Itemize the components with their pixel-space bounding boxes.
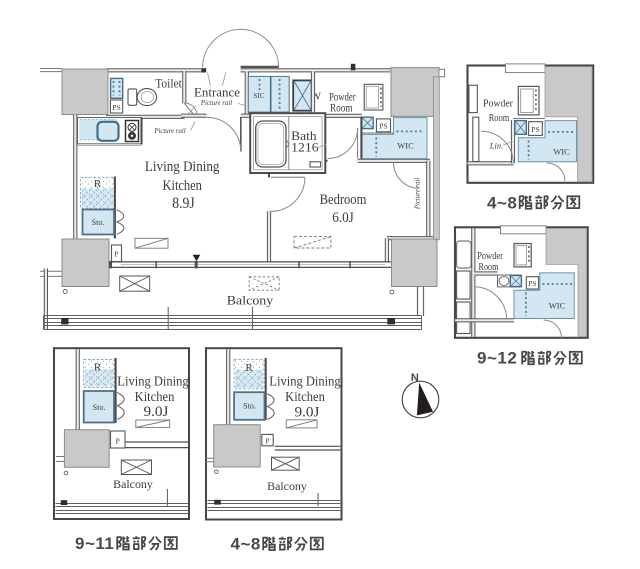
svg-text:9.0J: 9.0J	[144, 404, 169, 420]
svg-text:9~12: 9~12	[477, 349, 517, 368]
svg-text:Sto.: Sto.	[243, 401, 256, 410]
svg-text:Living Dining: Living Dining	[117, 375, 188, 390]
svg-text:PS: PS	[528, 279, 536, 288]
svg-text:Balcony: Balcony	[267, 479, 307, 493]
svg-text:4~8: 4~8	[487, 193, 517, 212]
svg-text:Room: Room	[489, 112, 510, 124]
svg-text:9~11: 9~11	[75, 534, 114, 553]
svg-text:P: P	[265, 436, 269, 445]
svg-text:Room: Room	[479, 261, 499, 273]
svg-text:Room: Room	[330, 103, 353, 115]
svg-text:P: P	[114, 249, 118, 258]
svg-text:Living Dining: Living Dining	[145, 159, 220, 175]
svg-text:Powder: Powder	[329, 91, 356, 103]
svg-text:8.9J: 8.9J	[172, 195, 195, 212]
svg-text:9.0J: 9.0J	[295, 405, 320, 421]
svg-text:Bedroom: Bedroom	[320, 192, 367, 208]
svg-text:1216: 1216	[291, 141, 318, 155]
svg-text:SIC: SIC	[253, 92, 264, 100]
svg-text:Toilet: Toilet	[155, 77, 182, 91]
svg-text:PS: PS	[379, 122, 387, 131]
svg-text:N: N	[411, 372, 419, 384]
svg-text:Balcony: Balcony	[227, 292, 274, 307]
svg-text:R: R	[94, 178, 102, 190]
svg-text:PS: PS	[531, 125, 539, 134]
svg-text:Kitchen: Kitchen	[285, 390, 325, 405]
svg-text:PS: PS	[112, 103, 120, 112]
svg-text:R: R	[94, 362, 102, 374]
svg-text:Picture rail: Picture rail	[153, 128, 185, 135]
svg-text:Picture rail: Picture rail	[200, 100, 232, 107]
svg-text:Picture rail: Picture rail	[415, 178, 422, 210]
svg-text:R: R	[245, 362, 253, 374]
svg-text:Sto.: Sto.	[92, 218, 105, 227]
svg-text:4~8: 4~8	[231, 535, 261, 554]
svg-text:Living Dining: Living Dining	[269, 375, 340, 390]
svg-text:Entrance: Entrance	[194, 84, 240, 99]
svg-text:Kitchen: Kitchen	[163, 178, 203, 194]
svg-text:Sto.: Sto.	[93, 403, 106, 412]
svg-text:P: P	[116, 436, 120, 445]
svg-text:6.0J: 6.0J	[332, 210, 354, 226]
svg-text:Powder: Powder	[483, 98, 513, 110]
svg-text:Balcony: Balcony	[113, 477, 153, 491]
svg-text:WIC: WIC	[397, 140, 414, 150]
svg-text:WIC: WIC	[549, 300, 566, 310]
svg-text:Kitchen: Kitchen	[135, 390, 175, 405]
svg-text:WIC: WIC	[553, 146, 570, 156]
svg-text:Lin.: Lin.	[489, 140, 503, 150]
